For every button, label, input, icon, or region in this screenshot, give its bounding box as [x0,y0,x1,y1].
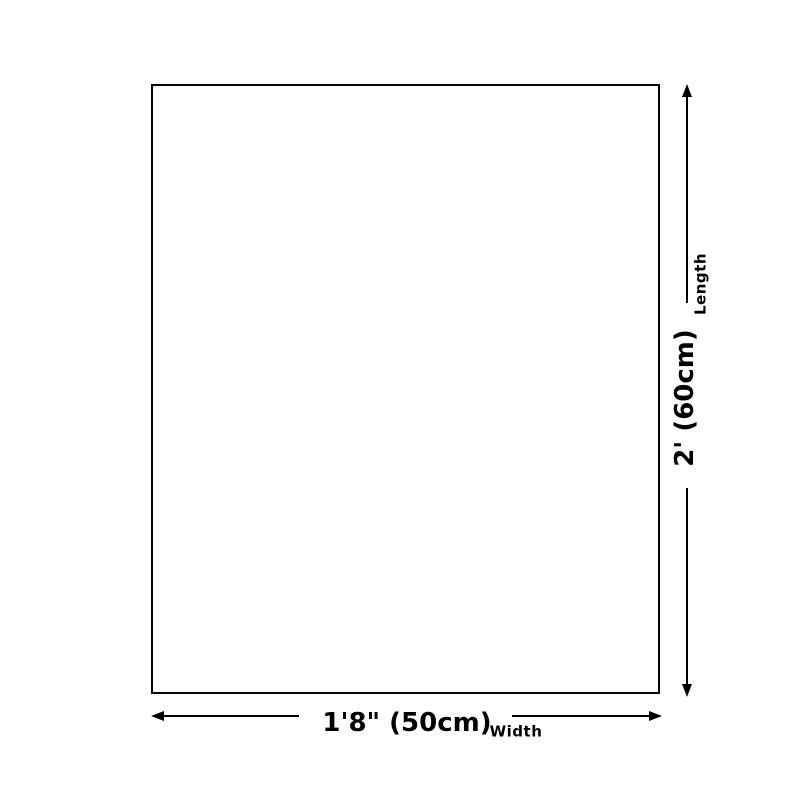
length-dimension-line-upper [686,95,688,303]
product-outline-rectangle [151,84,660,694]
width-value-label: 1'8" (50cm) [322,710,491,736]
width-dimension-line-right [512,715,650,717]
arrow-down-icon [682,684,692,697]
length-dimension-line-lower [686,488,688,686]
width-axis-label: Width [490,725,543,740]
arrow-right-icon [649,711,662,721]
width-dimension-line-left [162,715,299,717]
length-axis-label: Length [694,253,709,315]
dimension-diagram: Length 2' (60cm) 1'8" (50cm) Width [0,0,800,800]
length-value-label: 2' (60cm) [672,329,698,467]
